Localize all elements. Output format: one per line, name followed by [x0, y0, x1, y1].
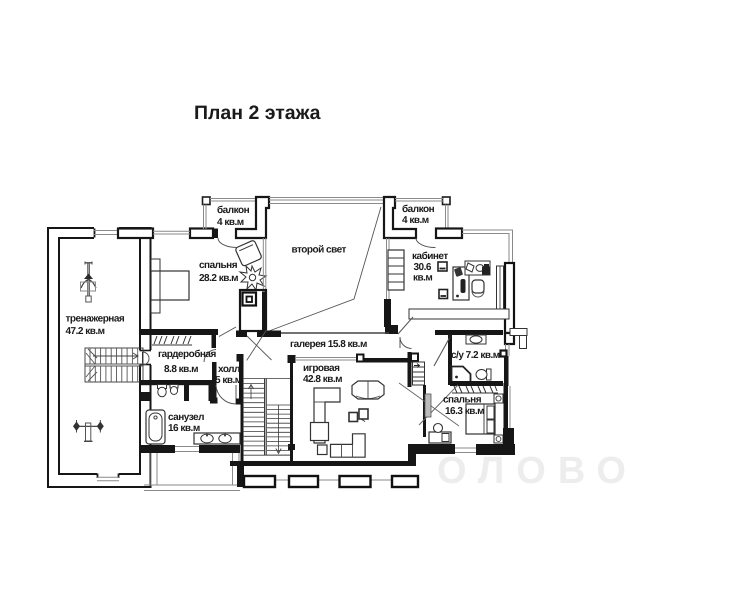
svg-text:8.8 кв.м: 8.8 кв.м	[164, 364, 198, 375]
svg-text:42.8 кв.м: 42.8 кв.м	[303, 374, 342, 385]
svg-text:балкон: балкон	[402, 204, 435, 215]
svg-text:План 2 этажа: План 2 этажа	[194, 102, 321, 124]
svg-text:с/у 7.2 кв.м: с/у 7.2 кв.м	[451, 350, 500, 361]
svg-text:гардеробная: гардеробная	[158, 349, 216, 360]
svg-text:16 кв.м: 16 кв.м	[168, 423, 200, 434]
svg-text:30.6: 30.6	[414, 262, 432, 273]
svg-text:47.2 кв.м: 47.2 кв.м	[66, 326, 105, 337]
svg-text:4 кв.м: 4 кв.м	[217, 217, 244, 228]
svg-text:28.2 кв.м: 28.2 кв.м	[199, 273, 238, 284]
svg-text:спальня: спальня	[443, 395, 482, 406]
svg-text:второй свет: второй свет	[292, 245, 347, 256]
svg-text:16.3 кв.м: 16.3 кв.м	[445, 406, 484, 417]
svg-text:5 кв.м: 5 кв.м	[215, 375, 242, 386]
svg-text:балкон: балкон	[217, 205, 250, 216]
svg-text:кабинет: кабинет	[412, 251, 448, 262]
svg-text:санузел: санузел	[168, 412, 204, 423]
svg-text:спальня: спальня	[199, 260, 238, 271]
svg-text:галерея 15.8 кв.м: галерея 15.8 кв.м	[290, 339, 367, 350]
svg-text:холл: холл	[218, 364, 240, 375]
svg-text:кв.м: кв.м	[413, 273, 432, 284]
svg-text:4 кв.м: 4 кв.м	[402, 215, 429, 226]
svg-text:ОЛОВО: ОЛОВО	[437, 450, 638, 492]
svg-text:тренажерная: тренажерная	[66, 314, 125, 325]
svg-text:игровая: игровая	[303, 363, 340, 374]
